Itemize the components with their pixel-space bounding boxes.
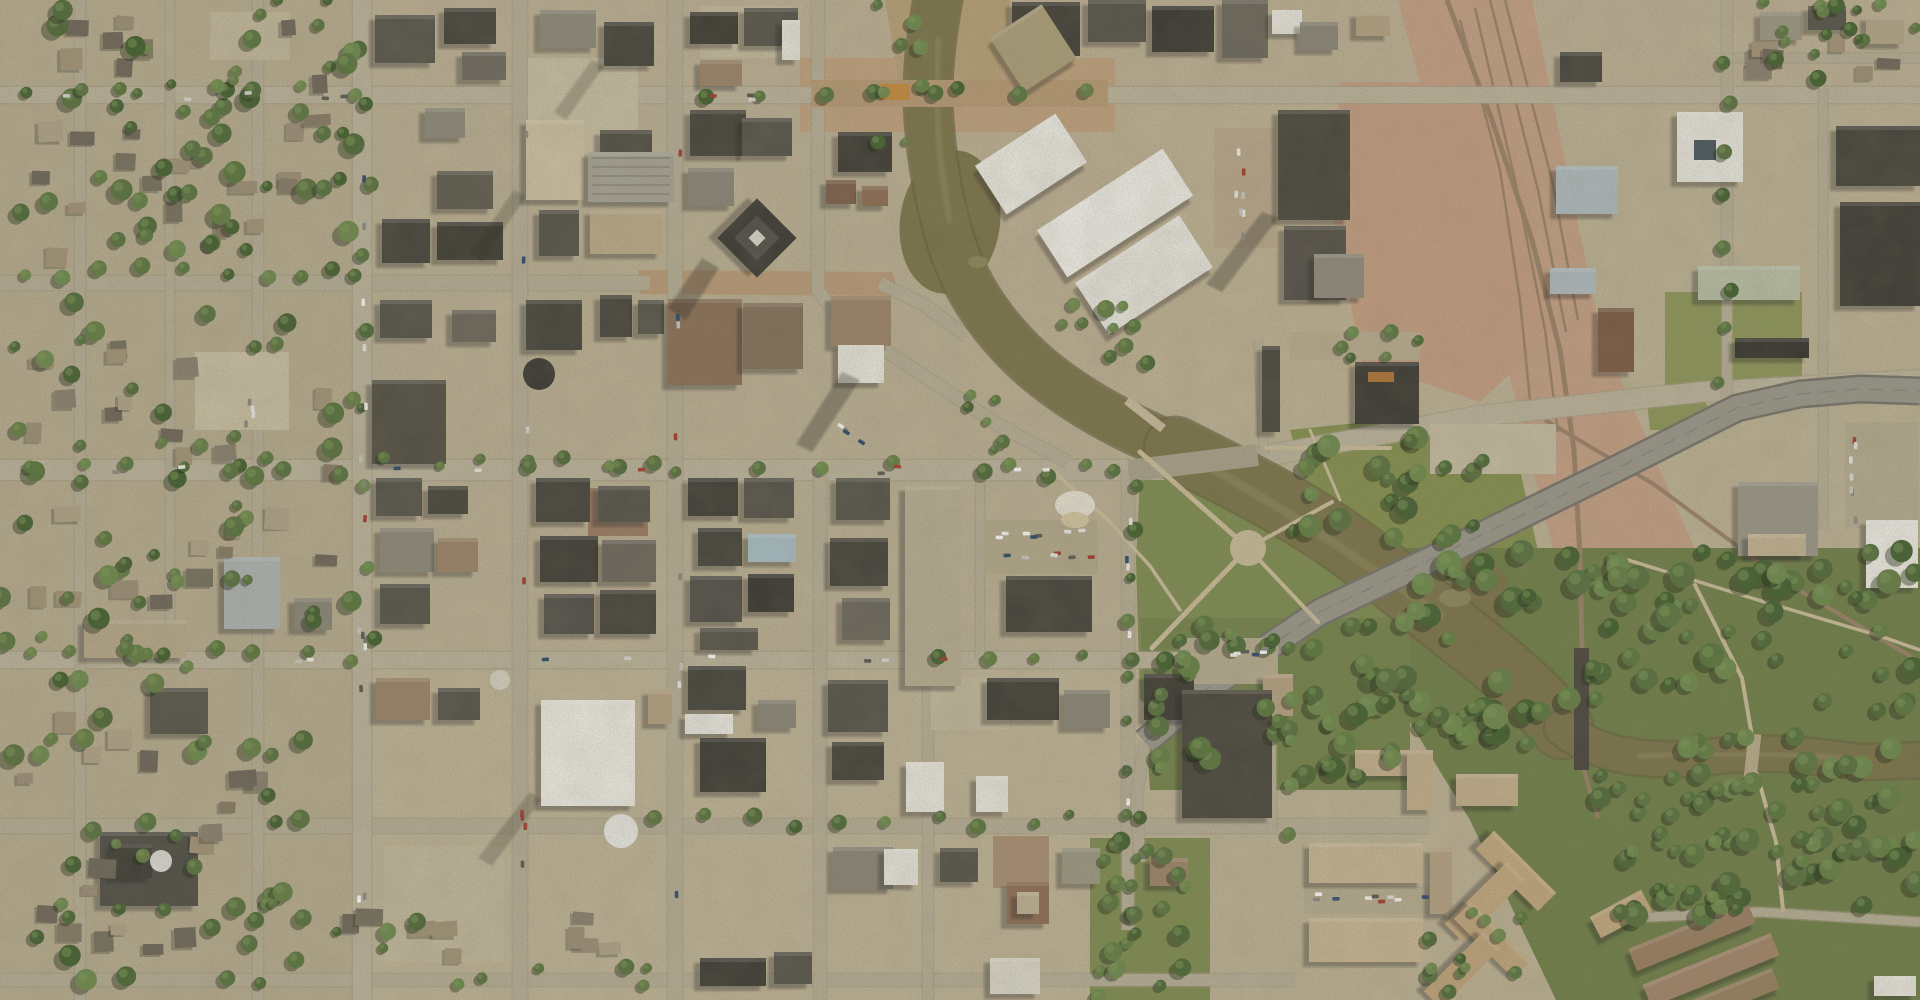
aerial-photo (0, 0, 1920, 1000)
photo-grain-overlay (0, 0, 1920, 1000)
aerial-imagery-viewport[interactable]: Aerial orthophoto of a downtown river ci… (0, 0, 1920, 1000)
